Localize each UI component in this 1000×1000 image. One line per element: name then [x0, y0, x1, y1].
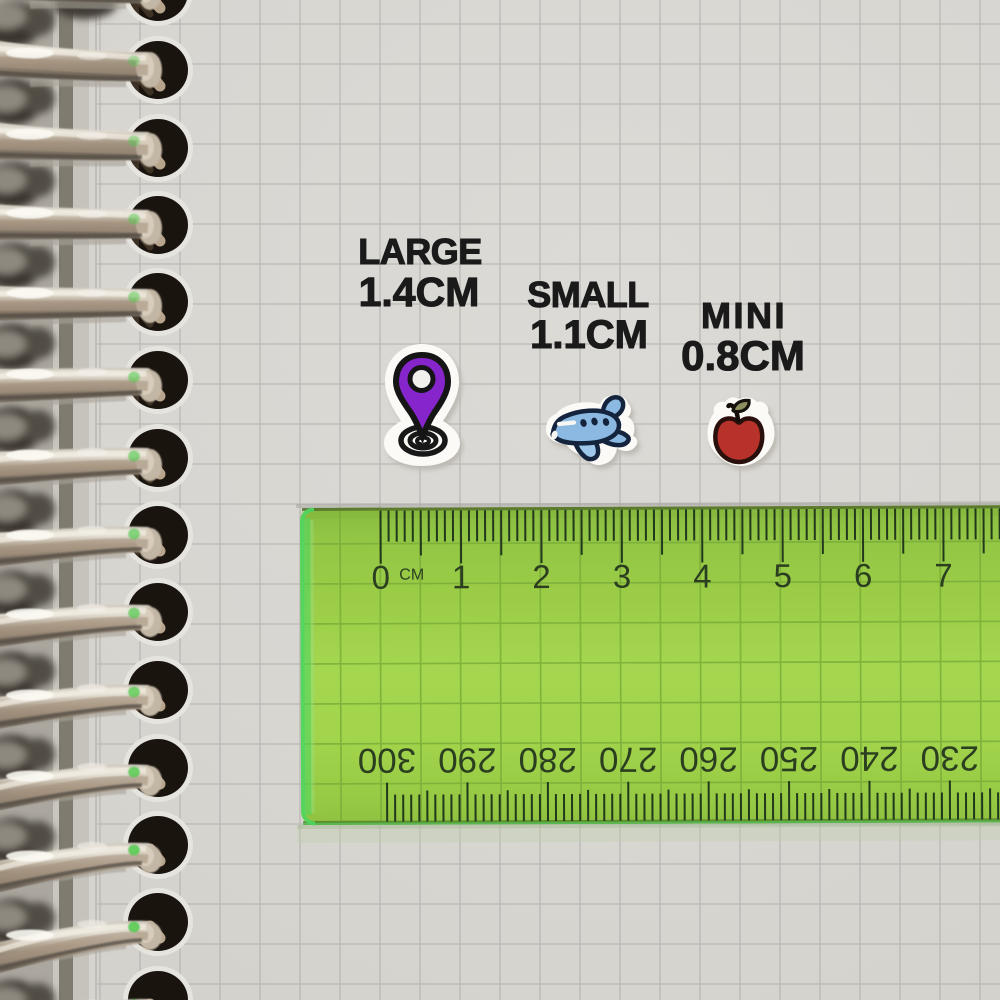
- svg-text:7: 7: [934, 556, 953, 593]
- svg-text:6: 6: [854, 557, 873, 594]
- svg-text:CM: CM: [399, 567, 424, 584]
- svg-text:2: 2: [532, 558, 551, 595]
- svg-text:260: 260: [679, 739, 738, 778]
- svg-text:1: 1: [452, 558, 471, 595]
- svg-text:4: 4: [693, 557, 712, 594]
- svg-text:230: 230: [920, 738, 979, 777]
- svg-text:250: 250: [760, 739, 819, 778]
- svg-text:300: 300: [358, 741, 417, 780]
- svg-text:270: 270: [599, 740, 658, 779]
- svg-text:290: 290: [438, 740, 497, 779]
- svg-text:3: 3: [613, 558, 632, 595]
- svg-text:5: 5: [774, 557, 793, 594]
- svg-text:280: 280: [518, 740, 577, 779]
- svg-text:0: 0: [372, 559, 391, 596]
- svg-text:240: 240: [840, 739, 899, 778]
